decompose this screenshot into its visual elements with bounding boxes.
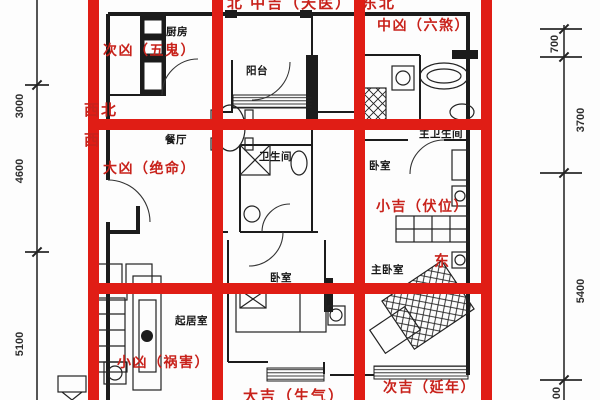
room-label-living-room: 起居室 (175, 313, 208, 328)
grid-line-vertical-4 (481, 0, 492, 400)
room-label-bathroom: 卫生间 (259, 149, 292, 164)
grid-line-horizontal-2 (88, 283, 492, 294)
fengshui-label-east-rating: 小吉（伏位） (376, 196, 469, 216)
grid-line-vertical-3 (354, 0, 365, 400)
fengshui-label-southeast-rating: 次吉（延年） (383, 377, 476, 397)
grid-line-vertical-1 (88, 0, 99, 400)
corner-toilet (58, 376, 86, 400)
grid-line-horizontal-1 (88, 119, 492, 130)
fengshui-label-east: 东 (434, 250, 451, 271)
fengshui-label-northwest: 西北 (84, 99, 118, 120)
fengshui-label-west: 西 (84, 129, 101, 150)
room-label-kitchen: 厨房 (166, 24, 188, 39)
fengshui-floorplan: 北 中吉（天医） 东北 中凶（六煞） 次凶（五鬼） 西北 西 大凶（绝命） 小吉… (0, 0, 600, 400)
master-bath-fixtures (392, 63, 474, 120)
fengshui-label-northwest-rating: 次凶（五鬼） (103, 40, 196, 60)
room-label-dining-room: 餐厅 (165, 132, 187, 147)
room-label-bedroom-upper: 卧室 (369, 158, 391, 173)
fengshui-label-west-rating: 大凶（绝命） (103, 158, 196, 178)
room-label-master-bedroom: 主卧室 (371, 262, 404, 277)
fengshui-label-north: 北 中吉（天医） (227, 0, 352, 13)
fengshui-label-south-rating: 大吉（生气） (243, 385, 345, 400)
tv-console (396, 216, 468, 242)
grid-line-vertical-2 (212, 0, 223, 400)
room-label-balcony: 阳台 (246, 63, 268, 78)
fengshui-label-northeast: 东北 (362, 0, 396, 13)
fengshui-label-southwest-rating: 小凶（祸害） (117, 352, 210, 372)
fengshui-label-northeast-rating: 中凶（六煞） (377, 15, 470, 35)
